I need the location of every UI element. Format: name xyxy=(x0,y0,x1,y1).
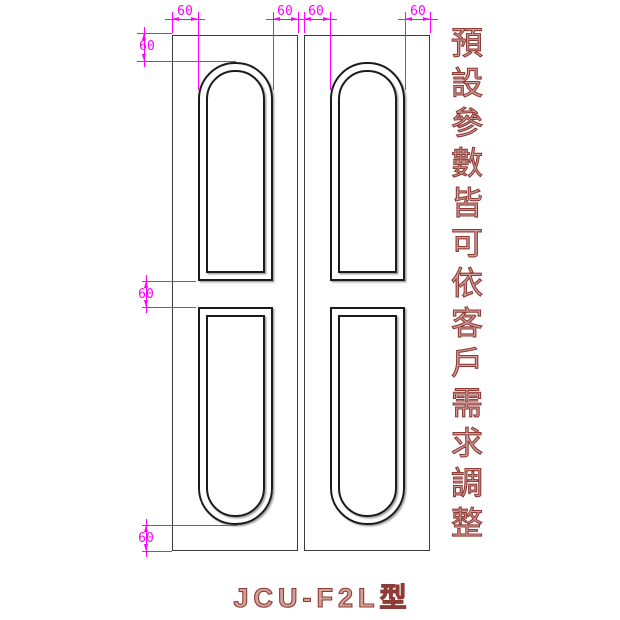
extension-line xyxy=(405,12,406,90)
extension-line xyxy=(198,12,199,90)
dimension-line xyxy=(297,19,337,20)
extension-line xyxy=(142,307,196,308)
dimension-label: 60 xyxy=(133,532,159,545)
extension-line xyxy=(142,281,196,282)
extension-line xyxy=(330,12,331,90)
dimension-label: 60 xyxy=(134,40,160,53)
dimension-label: 60 xyxy=(405,5,431,18)
dimension-line xyxy=(165,19,205,20)
cad-drawing-canvas: 60 60 60 60 60 60 xyxy=(0,0,620,620)
panel-right-lower-inner xyxy=(338,315,397,517)
panel-left-upper-inner xyxy=(206,70,265,273)
panel-left-lower-inner xyxy=(206,315,265,517)
dimension-arrow xyxy=(142,54,146,61)
extension-line xyxy=(298,12,299,33)
panel-right-upper-inner xyxy=(338,70,397,273)
dimension-line xyxy=(398,19,438,20)
extension-line xyxy=(273,12,274,90)
dimension-label: 60 xyxy=(272,5,298,18)
drawing-title: JCU-F2L型 xyxy=(200,584,445,612)
side-annotation-text: 預設參數皆可依客戶需求調整 xyxy=(443,26,487,586)
extension-line xyxy=(137,61,236,62)
dimension-label: 60 xyxy=(133,288,159,301)
dimension-label: 60 xyxy=(303,5,329,18)
dimension-label: 60 xyxy=(172,5,198,18)
extension-line xyxy=(142,525,237,526)
